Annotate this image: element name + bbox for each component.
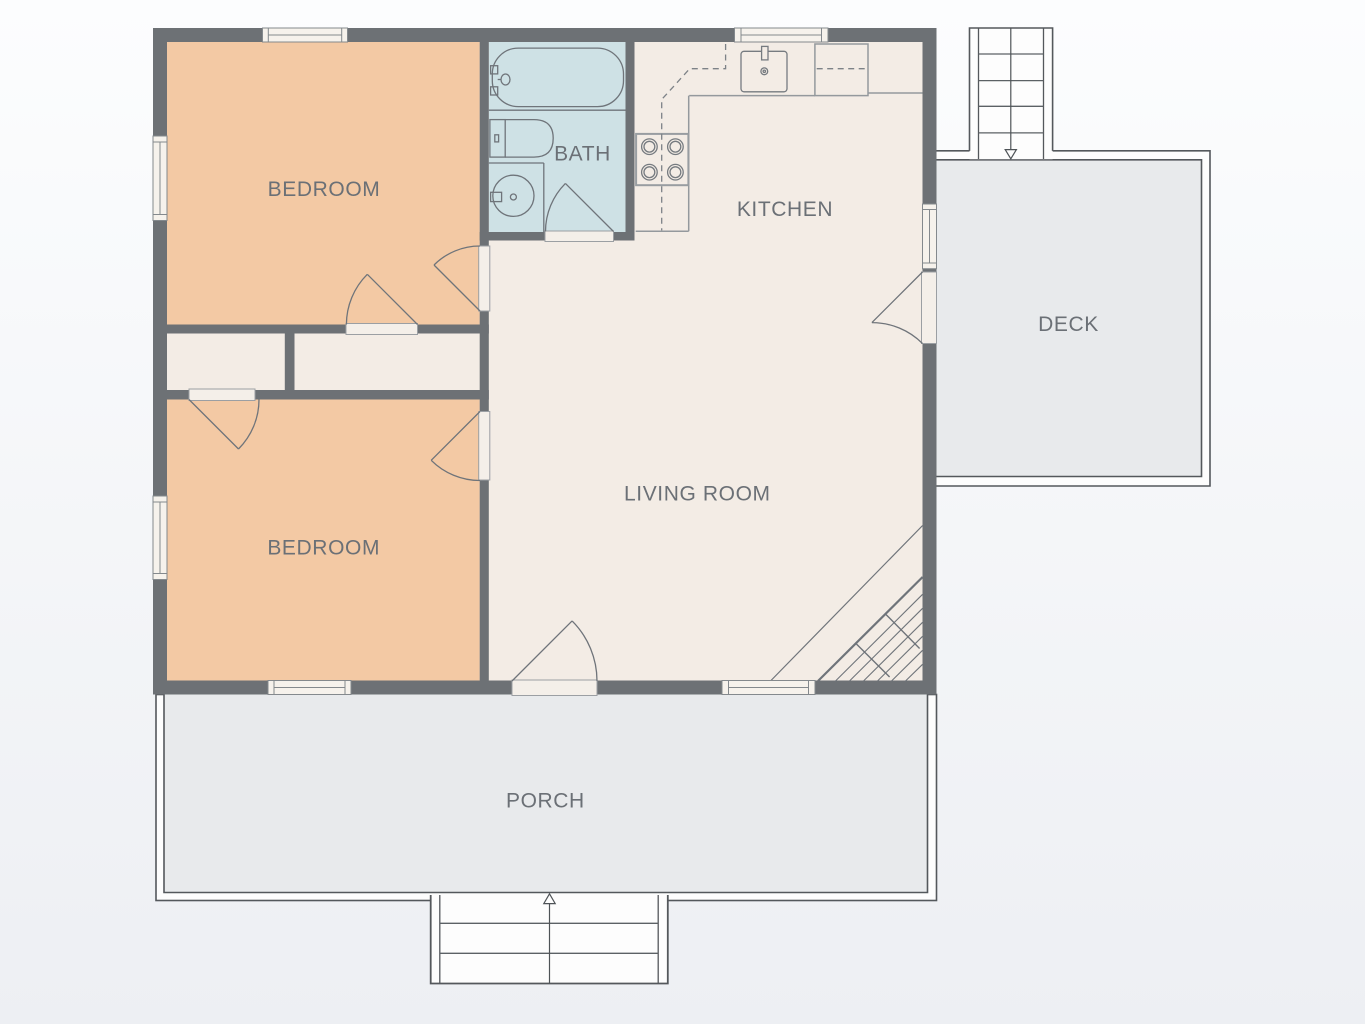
svg-text:PORCH: PORCH <box>506 790 585 813</box>
svg-text:DECK: DECK <box>1038 313 1099 336</box>
svg-text:KITCHEN: KITCHEN <box>737 198 833 221</box>
svg-text:BEDROOM: BEDROOM <box>267 537 380 560</box>
svg-text:LIVING ROOM: LIVING ROOM <box>624 483 771 506</box>
svg-text:BATH: BATH <box>554 143 611 166</box>
svg-text:BEDROOM: BEDROOM <box>268 178 381 201</box>
